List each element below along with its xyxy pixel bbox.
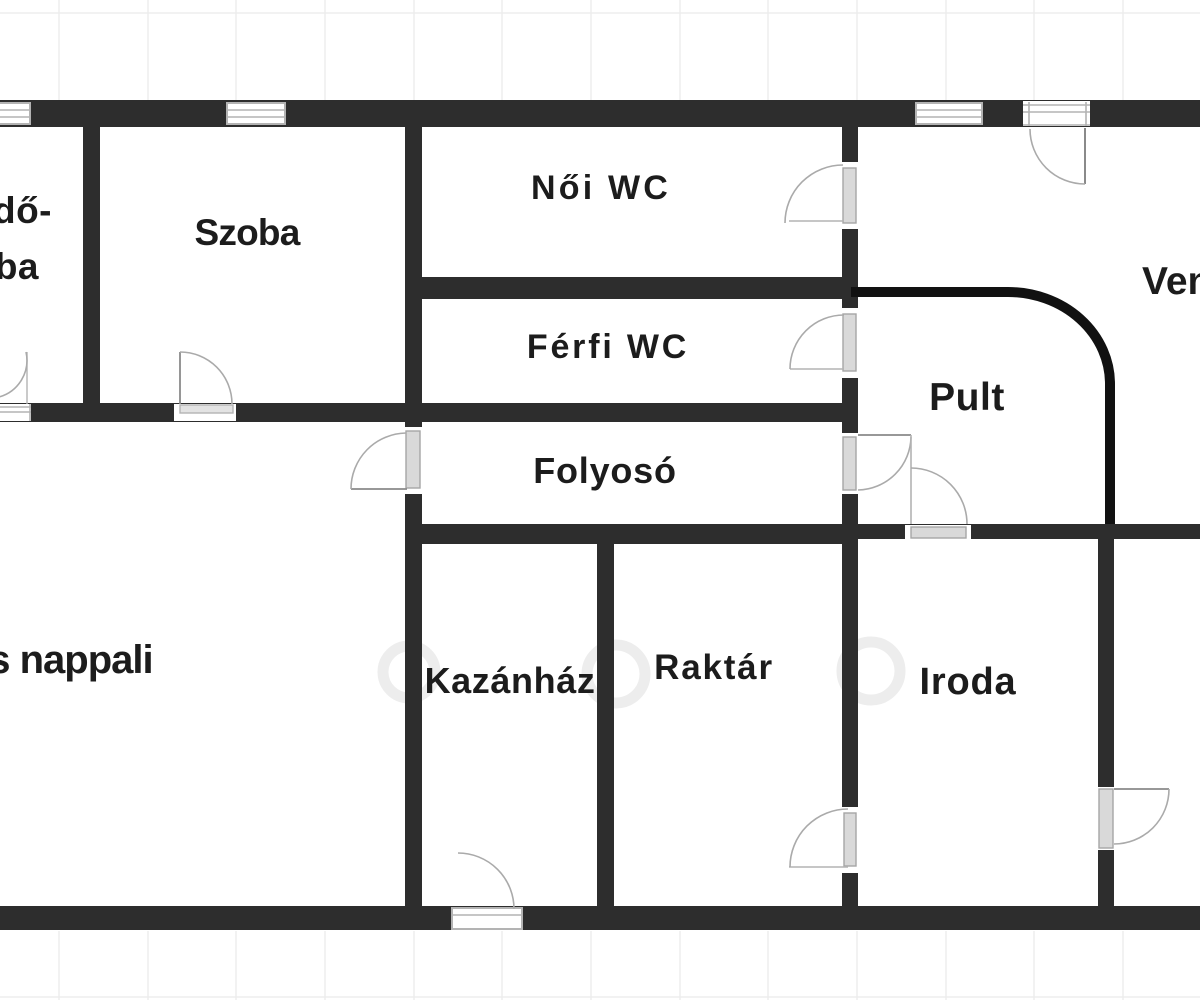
- svg-text:Fürdő-: Fürdő-: [0, 190, 52, 231]
- svg-text:szoba: szoba: [0, 246, 39, 287]
- svg-text:Kazánház: Kazánház: [425, 660, 596, 701]
- svg-text:Férfi WC: Férfi WC: [527, 328, 689, 366]
- svg-text:Szoba: Szoba: [195, 212, 301, 253]
- svg-text:és nappali: és nappali: [0, 638, 153, 682]
- svg-text:Pult: Pult: [929, 376, 1005, 419]
- svg-text:Folyosó: Folyosó: [533, 450, 677, 491]
- svg-text:Raktár: Raktár: [654, 648, 774, 687]
- svg-text:Iroda: Iroda: [920, 661, 1017, 703]
- svg-text:Vendégtér: Vendégtér: [1142, 260, 1200, 303]
- svg-text:Női WC: Női WC: [531, 169, 671, 207]
